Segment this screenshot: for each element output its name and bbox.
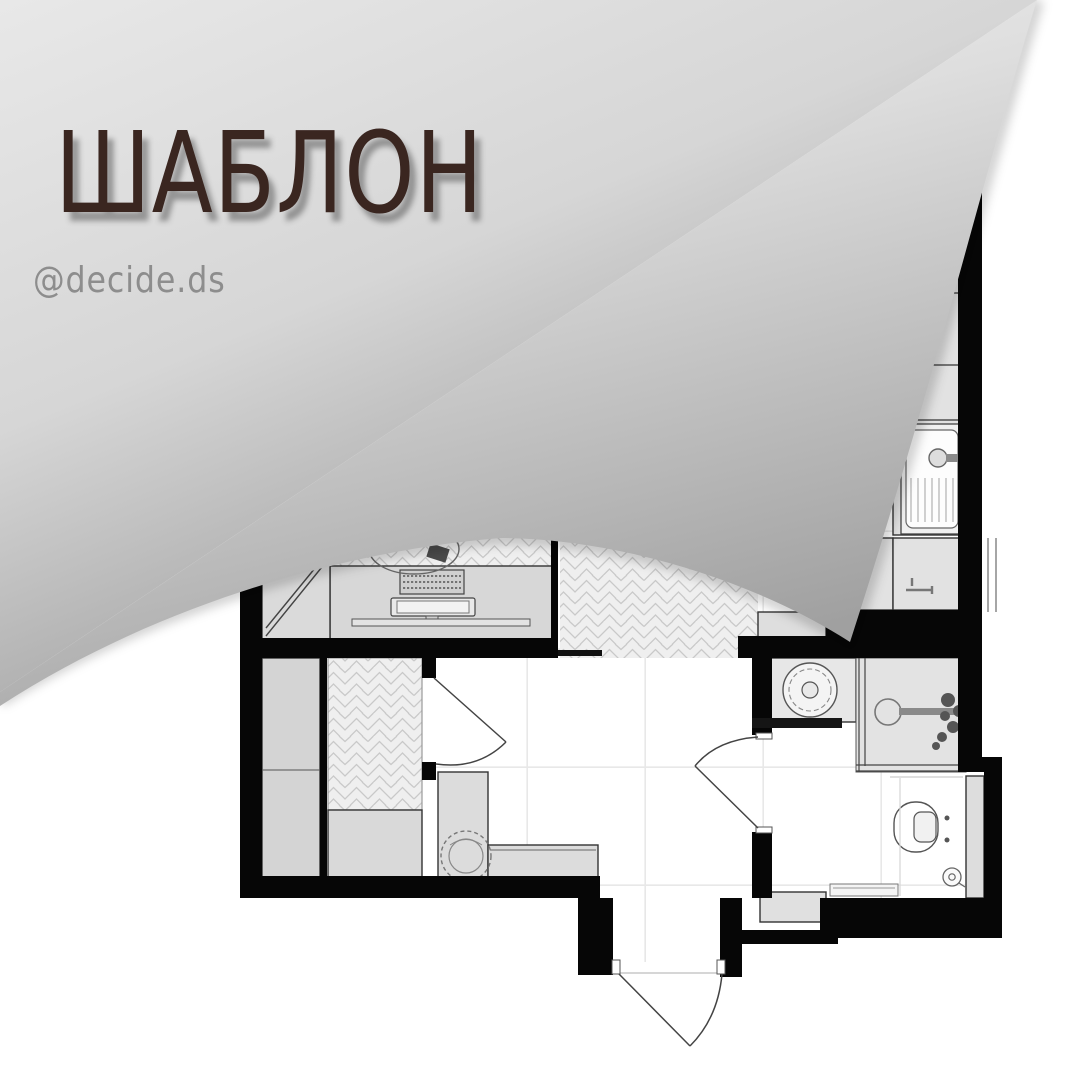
post-title: ШАБЛОН [55, 118, 484, 230]
author-handle: @decide.ds [33, 263, 226, 299]
bath-mat [830, 884, 898, 896]
duct-shaft [966, 776, 984, 898]
kitchen-window [988, 538, 996, 612]
side-cabinet [328, 810, 422, 882]
console-cabinet [438, 772, 488, 886]
entrance-door [619, 974, 722, 1046]
shelf [352, 619, 530, 626]
kitchen-faucet [929, 449, 947, 467]
washing-machine [758, 612, 826, 640]
fridge [262, 558, 330, 640]
bathroom-sink [783, 663, 837, 717]
kitchen-cabinets [848, 143, 963, 610]
post-canvas: ШАБЛОН @decide.ds [0, 0, 1080, 1080]
wardrobe [262, 658, 320, 884]
